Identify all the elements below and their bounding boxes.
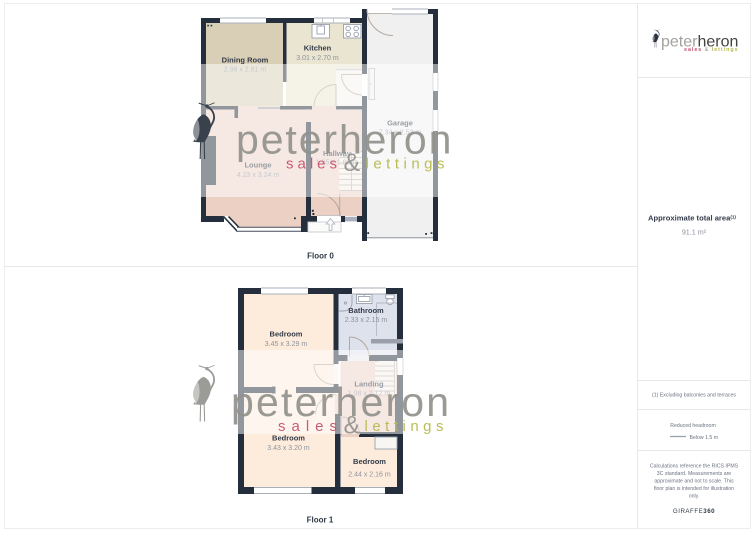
svg-text:2.33 x 2.15 m: 2.33 x 2.15 m (345, 317, 388, 324)
svg-text:Below 1.5 m: Below 1.5 m (690, 435, 719, 441)
svg-text:Bedroom: Bedroom (270, 330, 303, 339)
svg-text:3.01 x 2.70 m: 3.01 x 2.70 m (296, 55, 339, 62)
svg-text:&: & (344, 149, 361, 177)
svg-text:lettings: lettings (365, 418, 449, 435)
svg-text:(1) Excluding balconies and te: (1) Excluding balconies and terraces (652, 393, 736, 399)
svg-text:3.43 x 3.20 m: 3.43 x 3.20 m (267, 445, 310, 452)
svg-text:floor plan is intended for ill: floor plan is intended for illustration (654, 486, 734, 492)
svg-text:sales: sales (278, 418, 343, 435)
svg-text:Reduced headroom: Reduced headroom (670, 423, 716, 429)
svg-text:Dining Room: Dining Room (222, 56, 269, 65)
svg-text:2.44 x 2.16 m: 2.44 x 2.16 m (348, 472, 391, 479)
svg-text:3C standard. Measurements are: 3C standard. Measurements are (657, 471, 732, 477)
svg-text:Bedroom: Bedroom (353, 457, 386, 466)
svg-text:sales & lettings: sales & lettings (684, 47, 739, 53)
svg-text:Kitchen: Kitchen (304, 44, 332, 53)
svg-text:sales: sales (286, 156, 341, 173)
svg-text:approximate and not to scale.: approximate and not to scale. This (654, 479, 734, 485)
svg-text:Floor 0: Floor 0 (307, 252, 334, 261)
svg-text:Floor 1: Floor 1 (307, 516, 334, 525)
svg-text:GIRAFFE360: GIRAFFE360 (673, 508, 715, 515)
svg-text:Approximate total area(1): Approximate total area(1) (648, 214, 736, 223)
svg-text:Calculations reference the RIC: Calculations reference the RICS IPMS (650, 464, 739, 470)
svg-text:Bathroom: Bathroom (348, 306, 384, 315)
svg-text:lettings: lettings (366, 156, 450, 173)
svg-text:91.1 m²: 91.1 m² (682, 228, 707, 237)
svg-text:only.: only. (689, 494, 700, 500)
svg-text:3.45 x 3.29 m: 3.45 x 3.29 m (265, 341, 308, 348)
svg-text:&: & (344, 412, 361, 440)
